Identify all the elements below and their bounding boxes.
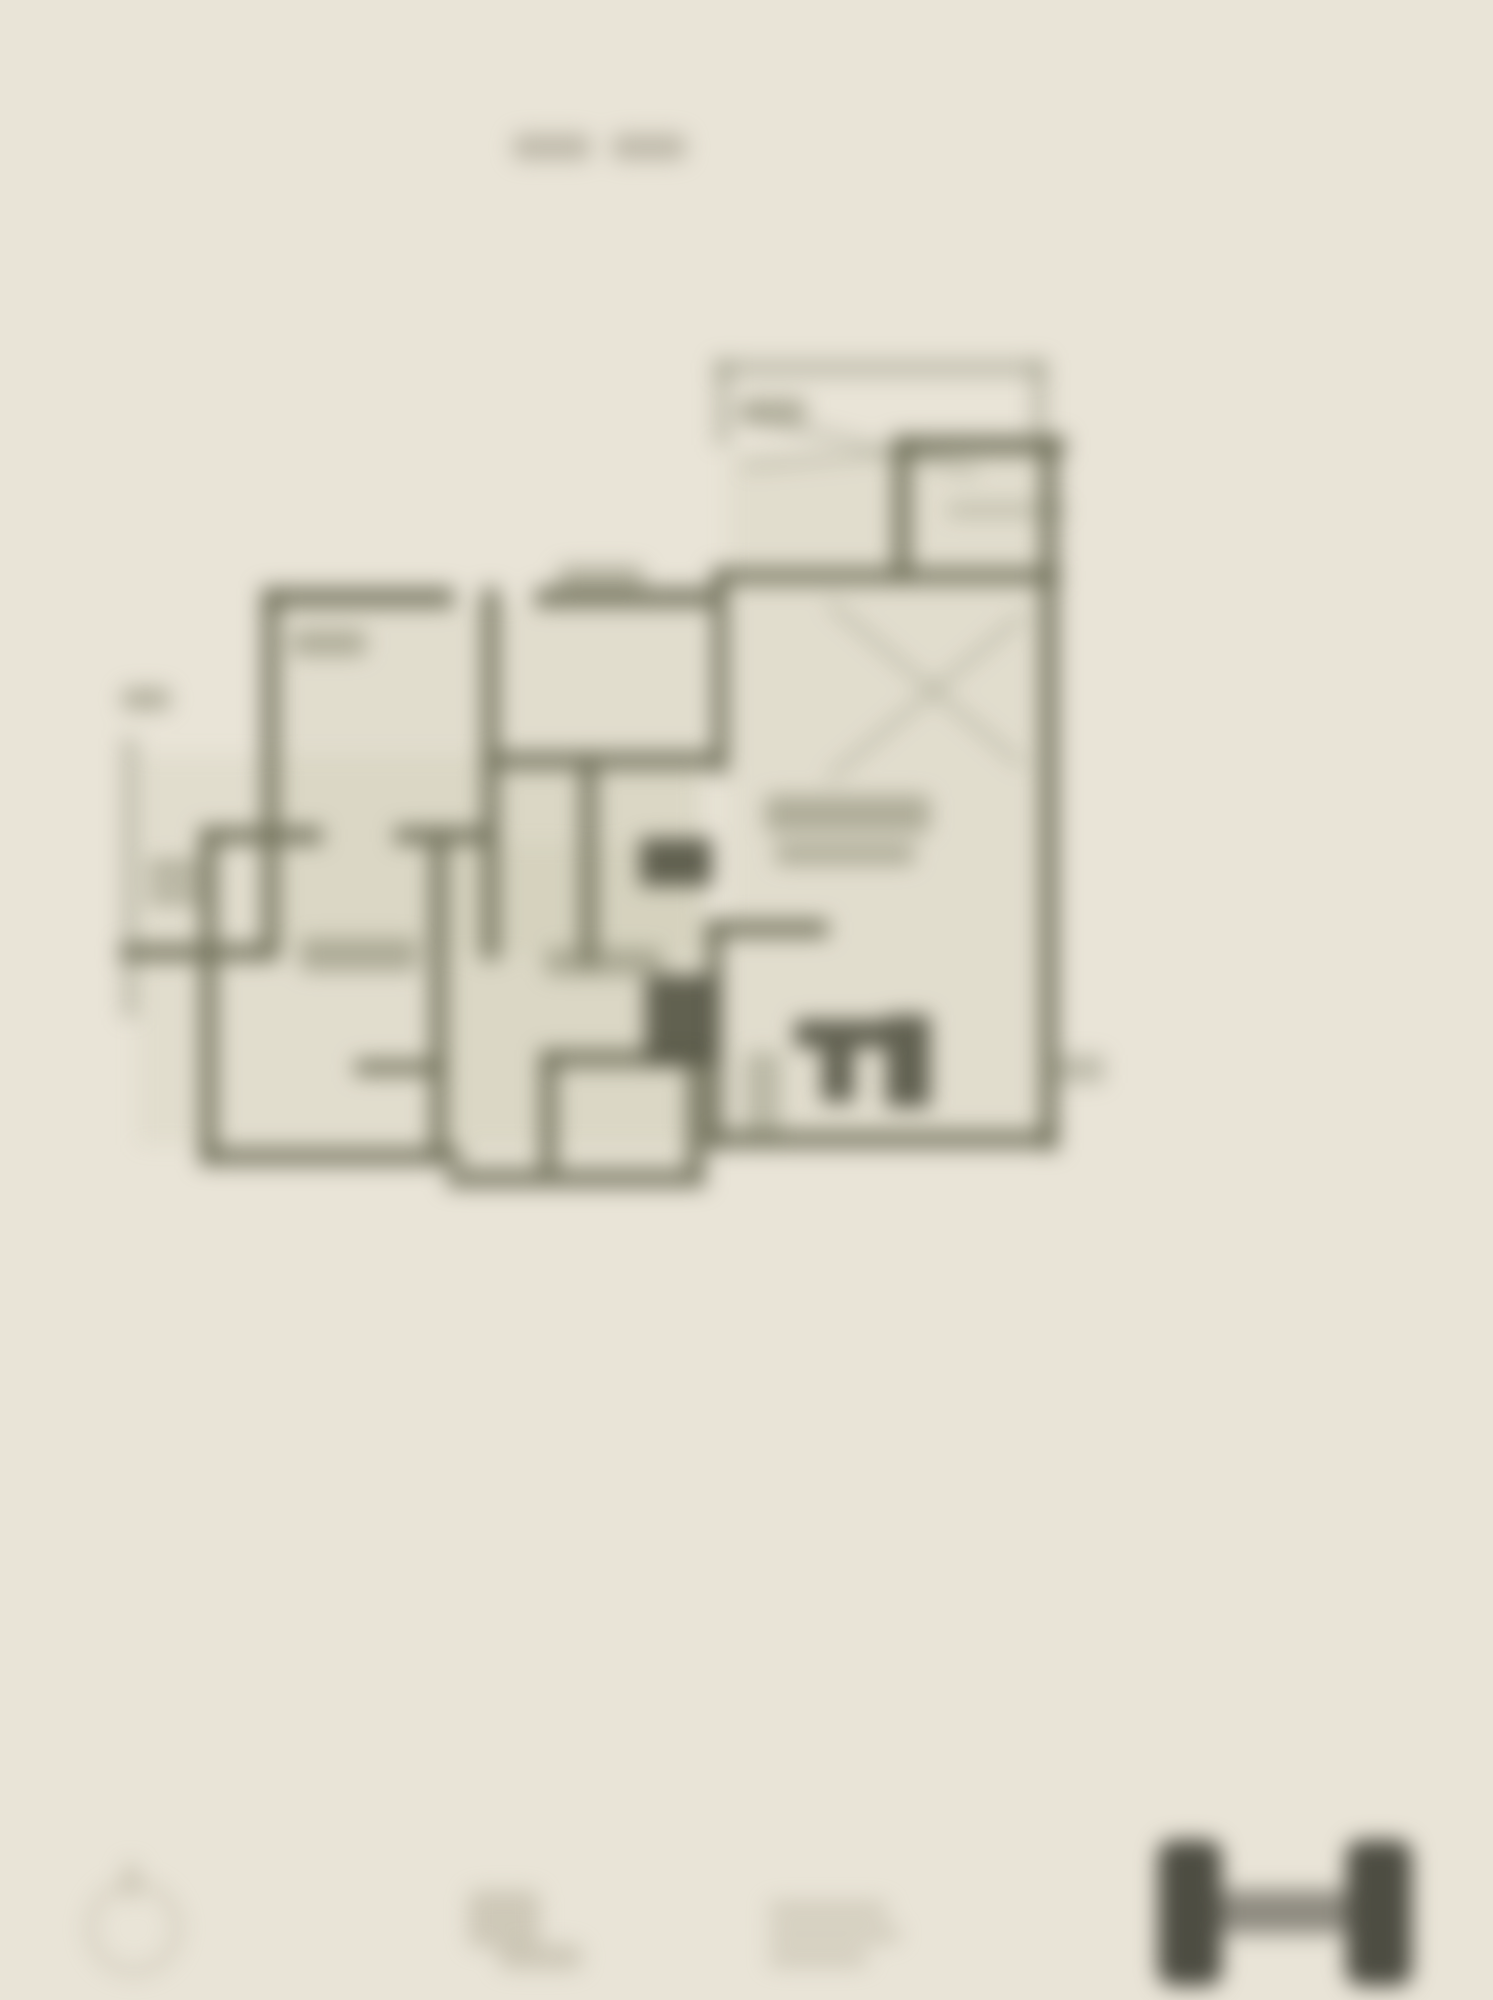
- terrace-top-wall: [715, 360, 1045, 376]
- bath-top-wall: [706, 920, 828, 937]
- label-small-left-1: [148, 860, 218, 880]
- label-living-line-2: [775, 843, 915, 865]
- scale-bar-blob: [498, 1944, 582, 1970]
- fixture-left-band: [745, 1052, 781, 1148]
- logo-bar-left: [1158, 1840, 1222, 1986]
- upper-left-top-wall-a: [262, 588, 454, 607]
- label-bedroom-left: [292, 630, 366, 656]
- note-text-line-1: [768, 1902, 888, 1918]
- center-divider-wall: [430, 827, 447, 1165]
- outer-right-wall: [1040, 436, 1058, 1150]
- dark-block-upper: [640, 838, 712, 886]
- logo-bar-right: [1346, 1840, 1412, 1986]
- note-text-line-3: [768, 1950, 868, 1966]
- terrace-right-wall: [1032, 360, 1047, 445]
- sheet: [0, 0, 1493, 2000]
- closet-wall: [355, 1060, 447, 1075]
- center-bottom-wall: [447, 1170, 705, 1187]
- terrace-left-wall: [715, 360, 730, 445]
- note-text-line-2: [768, 1926, 900, 1942]
- label-living-line-1: [765, 795, 930, 833]
- title-word-1: [513, 134, 591, 160]
- exterior-note-smudge: [122, 688, 170, 710]
- title-word-2: [612, 134, 686, 160]
- hall-bottom-wall: [482, 752, 714, 769]
- entry-stub-wall: [1058, 1055, 1104, 1083]
- fixture-t-stem: [822, 1048, 854, 1102]
- scale-figure-blob: [468, 1890, 540, 1948]
- bottomleft-top-wall-a: [200, 827, 322, 844]
- compass-needle: [124, 1862, 138, 1898]
- artwork-layer: [0, 0, 1493, 2000]
- logo-connector: [1222, 1890, 1346, 1934]
- fixture-t-bar: [795, 1020, 887, 1048]
- label-room-bottomleft: [300, 938, 418, 972]
- label-bedroom-mid: [558, 566, 644, 596]
- hall-divider-wall: [580, 752, 597, 967]
- stair-left-wall: [540, 1050, 557, 1172]
- fixture-right-band: [886, 1015, 930, 1107]
- garage-divider-wall: [712, 568, 1060, 584]
- bottomleft-bottom-wall: [200, 1148, 462, 1165]
- label-small-left-2: [148, 886, 206, 904]
- upper-left-outer-wall: [262, 588, 279, 960]
- garage-stair-line: [948, 504, 1066, 516]
- dark-block-lower: [645, 975, 715, 1065]
- bedroom-divider-wall: [482, 588, 499, 960]
- garage-note-smudge: [742, 398, 806, 424]
- label-small-center: [545, 948, 663, 976]
- living-left-wall: [712, 568, 728, 773]
- balcony-bottom-wall: [120, 944, 272, 961]
- balcony-left-wall: [122, 738, 137, 1018]
- stair-right-wall: [687, 1050, 704, 1172]
